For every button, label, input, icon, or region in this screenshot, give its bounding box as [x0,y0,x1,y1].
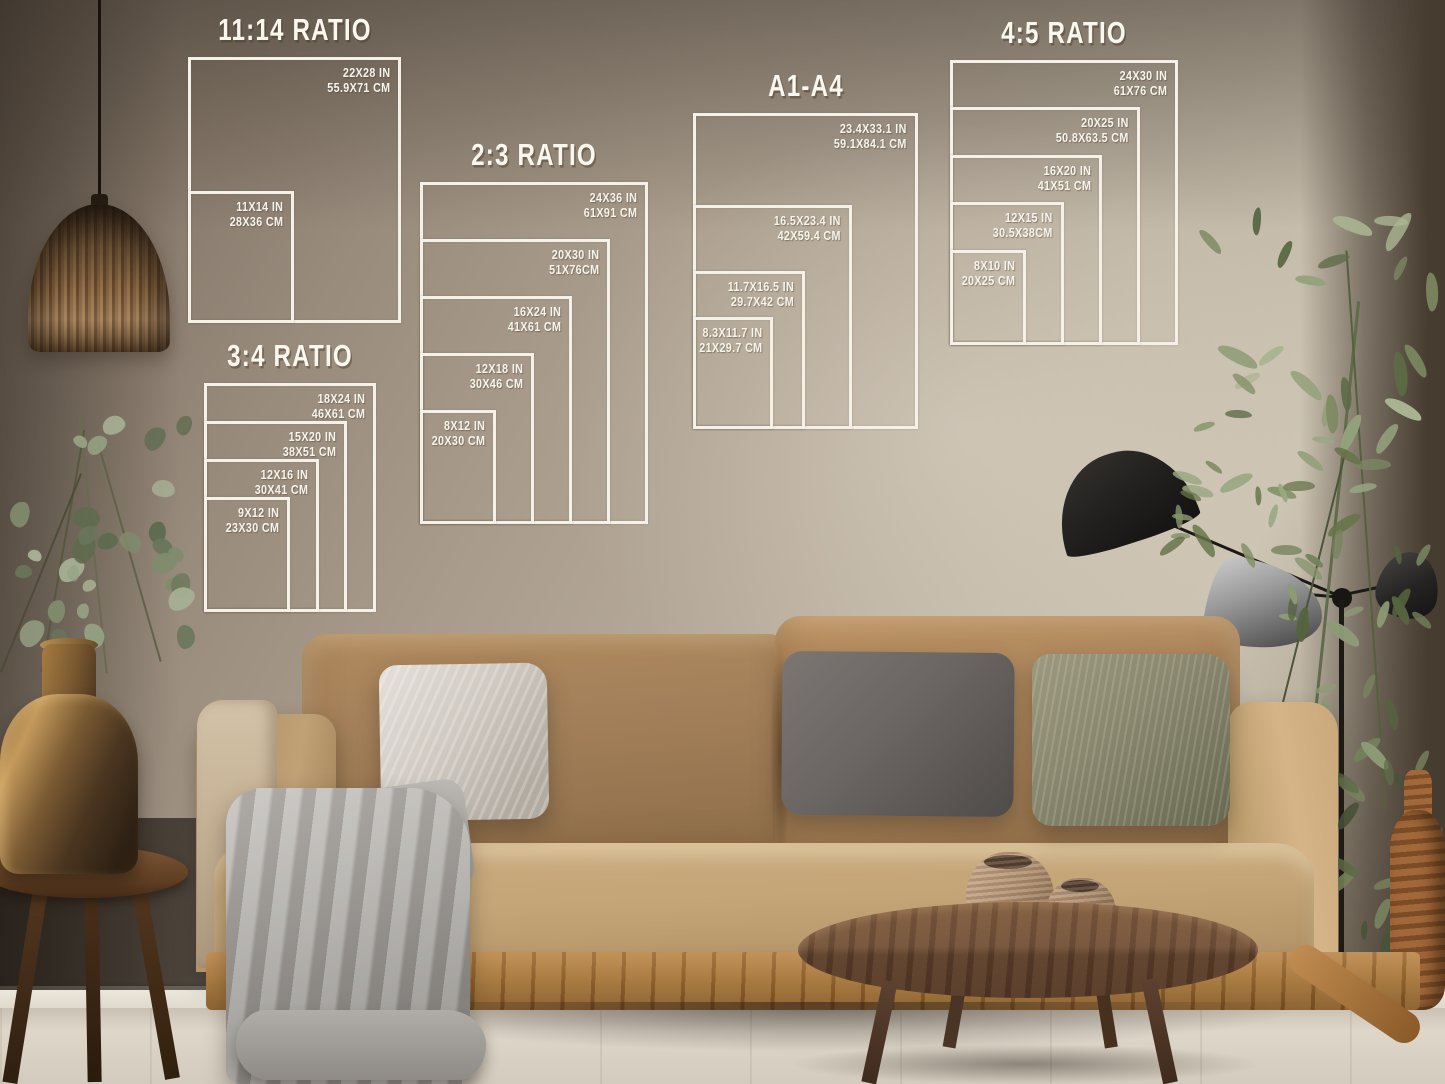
coffee-table [0,0,1445,1084]
living-room-scene: 11:14 RATIO 22X28 IN 55.9X71 CM 11X14 IN… [0,0,1445,1084]
table-grain [798,902,1258,998]
table-floor-shadow [790,1044,1260,1084]
table-top [798,902,1258,998]
